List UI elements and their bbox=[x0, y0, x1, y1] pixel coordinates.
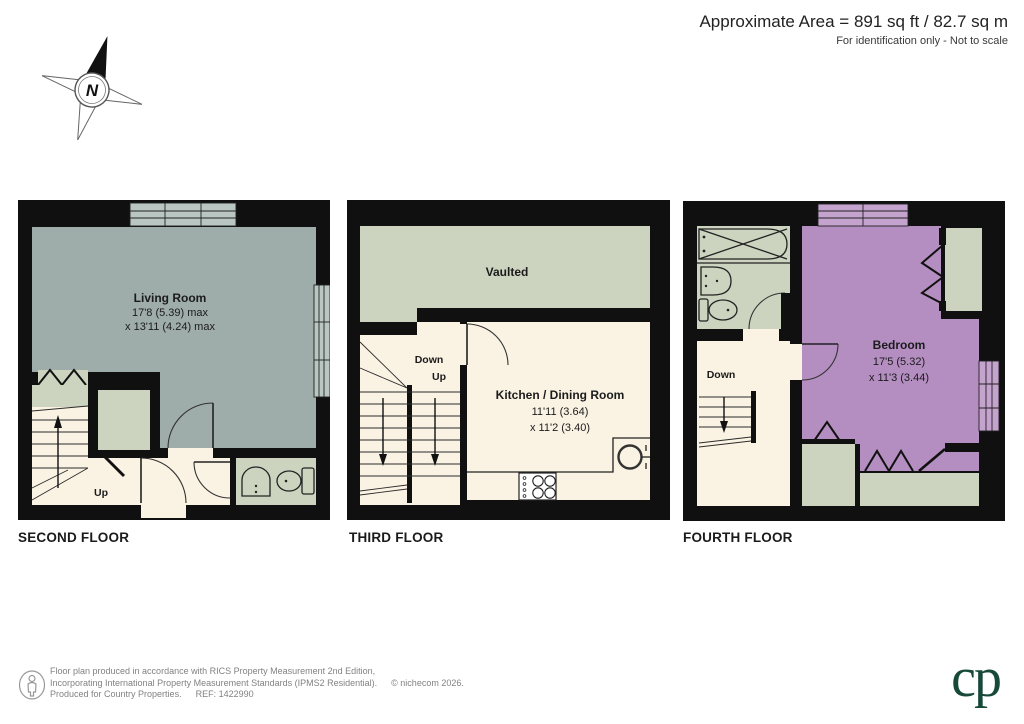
window-top bbox=[130, 203, 236, 226]
living-room-dim2: x 13'11 (4.24) max bbox=[125, 321, 215, 333]
window-right bbox=[314, 285, 330, 397]
bedroom-dim2: x 11'3 (3.44) bbox=[869, 372, 929, 384]
footer-credits: Floor plan produced in accordance with R… bbox=[50, 666, 464, 701]
window-top bbox=[818, 204, 908, 226]
bathroom-door-opening bbox=[743, 329, 779, 341]
third-floor-title: THIRD FLOOR bbox=[349, 530, 443, 545]
staircase-up bbox=[32, 406, 88, 505]
up-label: Up bbox=[432, 371, 446, 383]
kitchen-dim2: x 11'2 (3.40) bbox=[530, 422, 590, 434]
disclaimer-text: For identification only - Not to scale bbox=[699, 35, 1008, 47]
footer-line2-text: Incorporating International Property Mea… bbox=[50, 678, 377, 688]
stair-landing bbox=[32, 385, 88, 407]
closet-right bbox=[860, 473, 979, 506]
produced-for-text: Produced for Country Properties. bbox=[50, 689, 182, 699]
landing bbox=[697, 341, 790, 506]
hallway bbox=[88, 458, 230, 505]
down-label: Down bbox=[415, 354, 444, 366]
living-room-dim1: 17'8 (5.39) max bbox=[132, 307, 209, 319]
footer-line1: Floor plan produced in accordance with R… bbox=[50, 666, 464, 678]
wc bbox=[236, 458, 316, 505]
door-opening bbox=[460, 324, 467, 365]
approximate-area-text: Approximate Area = 891 sq ft / 82.7 sq m bbox=[699, 12, 1008, 32]
person-icon bbox=[18, 670, 46, 700]
kitchen-dim1: 11'11 (3.64) bbox=[532, 406, 589, 418]
closet-left bbox=[802, 444, 855, 506]
door-opening bbox=[168, 448, 213, 458]
up-label: Up bbox=[94, 487, 108, 499]
header: Approximate Area = 891 sq ft / 82.7 sq m… bbox=[699, 12, 1008, 47]
compass-north-label: N bbox=[86, 81, 99, 100]
ref-number: REF: 1422990 bbox=[196, 689, 254, 699]
window-right bbox=[979, 361, 999, 431]
hob-icon bbox=[519, 473, 556, 500]
second-floor-title: SECOND FLOOR bbox=[18, 530, 129, 545]
living-room-label: Living Room bbox=[134, 291, 207, 305]
copyright-text: © nichecom 2026. bbox=[391, 678, 464, 688]
compass-rose-icon: N bbox=[38, 36, 146, 140]
bedroom-dim1: 17'5 (5.32) bbox=[873, 356, 925, 368]
fourth-floor-plan: Bedroom 17'5 (5.32) x 11'3 (3.44) Down bbox=[683, 201, 1005, 521]
third-floor-plan: Vaulted Kitchen / Dining Room 11'11 (3.6… bbox=[347, 200, 670, 520]
footer-line3: Produced for Country Properties.REF: 142… bbox=[50, 689, 464, 701]
second-floor-plan: Living Room 17'8 (5.39) max x 13'11 (4.2… bbox=[18, 200, 330, 520]
closet bbox=[98, 390, 150, 450]
vaulted-label: Vaulted bbox=[486, 265, 529, 279]
bedroom-door-opening bbox=[790, 344, 802, 380]
cupboard-doors bbox=[38, 370, 88, 385]
country-properties-logo: cp bbox=[951, 648, 1000, 708]
fourth-floor-title: FOURTH FLOOR bbox=[683, 530, 793, 545]
wardrobe bbox=[945, 228, 982, 311]
entry-opening bbox=[141, 505, 186, 518]
kitchen-label: Kitchen / Dining Room bbox=[496, 388, 625, 402]
bedroom-label: Bedroom bbox=[873, 338, 926, 352]
down-label: Down bbox=[707, 369, 736, 381]
bathroom bbox=[697, 226, 790, 329]
footer-line2: Incorporating International Property Mea… bbox=[50, 678, 464, 690]
